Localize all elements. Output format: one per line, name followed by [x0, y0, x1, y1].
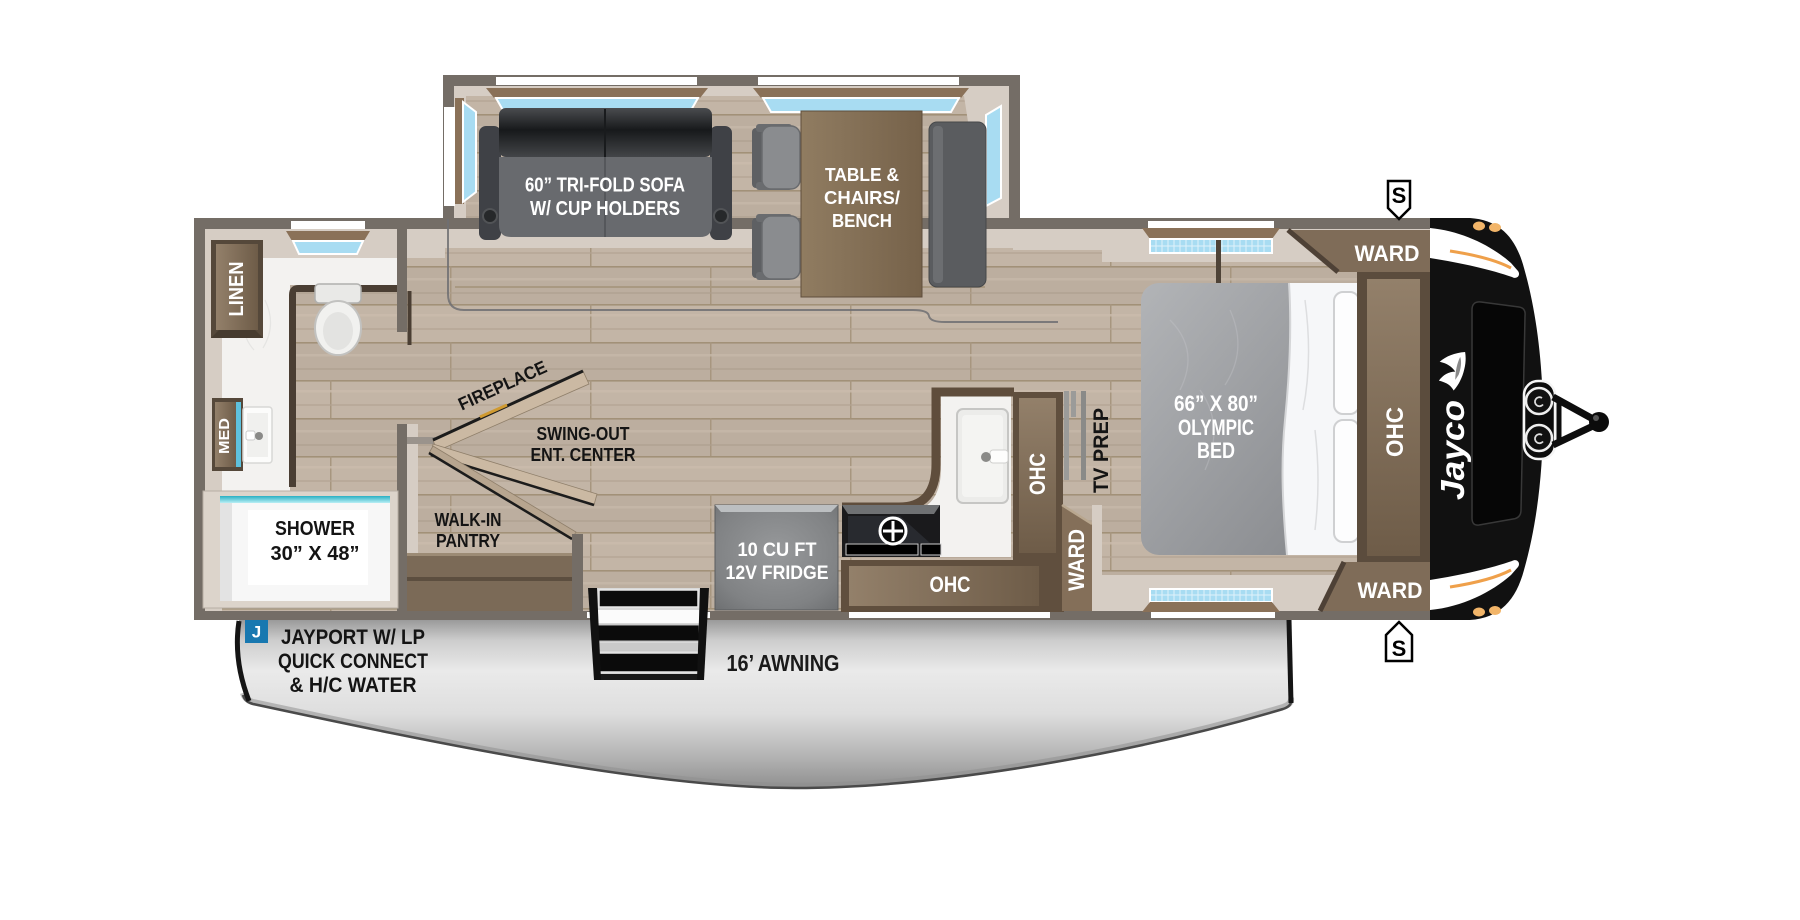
- svg-text:W/ CUP HOLDERS: W/ CUP HOLDERS: [530, 198, 680, 220]
- svg-text:OHC: OHC: [930, 572, 971, 597]
- svg-text:OLYMPIC: OLYMPIC: [1178, 415, 1254, 440]
- svg-text:60” TRI-FOLD SOFA: 60” TRI-FOLD SOFA: [525, 175, 685, 197]
- svg-text:OHC: OHC: [1382, 407, 1409, 457]
- svg-text:S: S: [1392, 636, 1407, 661]
- svg-text:S: S: [1392, 183, 1407, 208]
- svg-text:WALK-IN: WALK-IN: [435, 510, 502, 530]
- svg-text:ENT. CENTER: ENT. CENTER: [531, 445, 636, 465]
- svg-text:BED: BED: [1197, 438, 1235, 463]
- svg-text:MED: MED: [216, 418, 233, 454]
- svg-text:66” X 80”: 66” X 80”: [1174, 391, 1258, 416]
- svg-text:BENCH: BENCH: [832, 211, 892, 231]
- svg-text:OHC: OHC: [1025, 453, 1050, 495]
- svg-text:WARD: WARD: [1358, 578, 1423, 603]
- svg-text:16’ AWNING: 16’ AWNING: [727, 650, 840, 676]
- svg-text:30” X 48”: 30” X 48”: [271, 543, 360, 565]
- svg-text:12V FRIDGE: 12V FRIDGE: [726, 563, 829, 584]
- svg-text:CHAIRS/: CHAIRS/: [824, 188, 900, 208]
- svg-text:10 CU FT: 10 CU FT: [738, 540, 817, 561]
- svg-text:SWING-OUT: SWING-OUT: [537, 424, 630, 444]
- svg-text:Jayco: Jayco: [1434, 400, 1471, 500]
- svg-text:JAYPORT W/ LP: JAYPORT W/ LP: [281, 626, 425, 649]
- svg-text:& H/C WATER: & H/C WATER: [290, 674, 417, 697]
- svg-text:QUICK CONNECT: QUICK CONNECT: [278, 650, 428, 673]
- svg-text:WARD: WARD: [1064, 529, 1089, 591]
- svg-text:SHOWER: SHOWER: [275, 518, 355, 540]
- svg-text:J: J: [252, 623, 261, 642]
- svg-text:TV PREP: TV PREP: [1090, 408, 1113, 493]
- svg-text:PANTRY: PANTRY: [436, 531, 500, 551]
- svg-text:WARD: WARD: [1355, 241, 1420, 266]
- svg-text:LINEN: LINEN: [226, 262, 248, 317]
- svg-text:TABLE &: TABLE &: [825, 165, 899, 185]
